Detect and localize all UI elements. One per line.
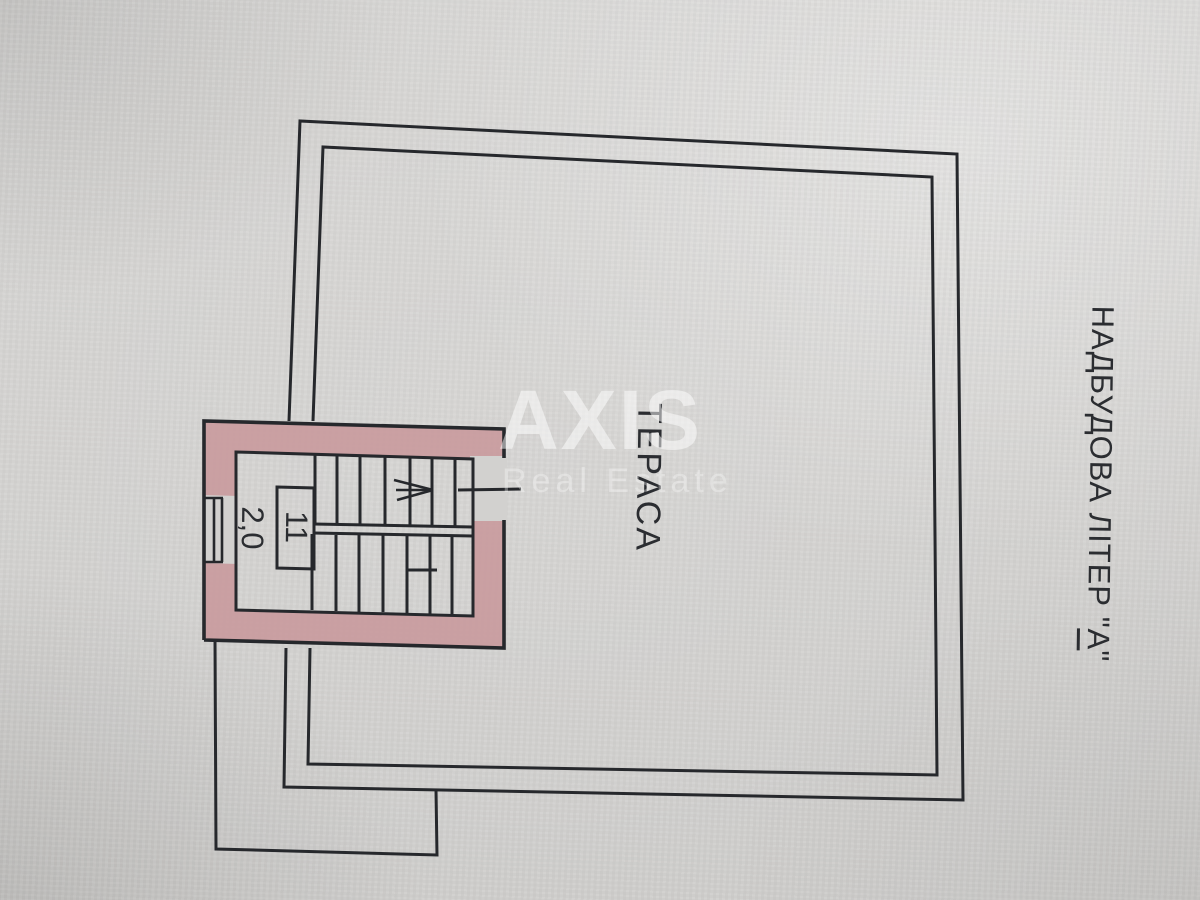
stairs-direction-arrow-icon [394, 480, 433, 500]
room-label-terrace: ТЕРАСА [627, 403, 668, 554]
building-title: НАДБУДОВА ЛІТЕР "А" [1080, 305, 1121, 662]
building-title-prefix: НАДБУДОВА ЛІТЕР " [1081, 305, 1121, 628]
terrace-inner-wall-line [308, 147, 937, 775]
door-threshold-line [458, 489, 521, 490]
flight-divider-line [313, 524, 473, 536]
floor-plan-drawing [0, 0, 1200, 900]
stair-treads-upper [315, 454, 455, 527]
room-number: 11 [278, 511, 314, 544]
lower-annex-outline [215, 640, 437, 855]
room-area: 2,0 [234, 506, 271, 550]
scanned-floor-plan-photo: ТЕРАСА НАДБУДОВА ЛІТЕР "А" 11 2,0 AXIS R… [0, 0, 1200, 900]
building-title-suffix: " [1081, 650, 1116, 663]
building-title-letter: А [1077, 628, 1116, 650]
stair-treads-lower [312, 534, 452, 614]
